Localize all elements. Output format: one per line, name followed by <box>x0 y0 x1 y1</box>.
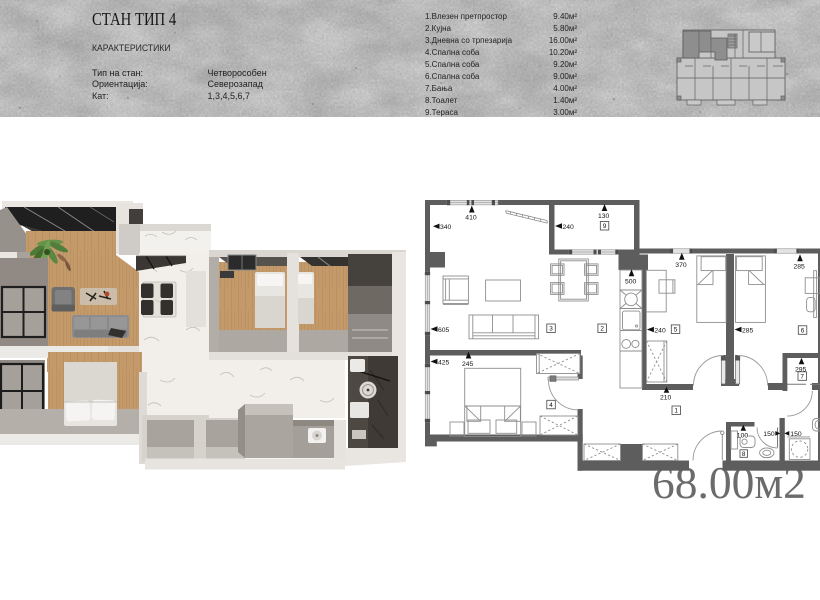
svg-text:210: 210 <box>660 395 672 402</box>
svg-text:1: 1 <box>674 408 678 415</box>
svg-text:7: 7 <box>800 373 804 380</box>
svg-text:245: 245 <box>462 361 474 368</box>
svg-text:150: 150 <box>790 431 802 438</box>
svg-text:2: 2 <box>600 326 604 333</box>
svg-text:9: 9 <box>603 223 607 230</box>
svg-text:240: 240 <box>563 224 575 231</box>
svg-text:130: 130 <box>598 213 610 220</box>
svg-text:150: 150 <box>763 431 775 438</box>
svg-text:605: 605 <box>438 327 450 334</box>
svg-text:5: 5 <box>674 327 678 334</box>
svg-text:100: 100 <box>737 432 749 439</box>
svg-text:370: 370 <box>675 262 687 269</box>
svg-text:4: 4 <box>549 402 553 409</box>
svg-text:285: 285 <box>742 327 754 334</box>
svg-text:240: 240 <box>654 327 666 334</box>
svg-text:500: 500 <box>625 279 637 286</box>
svg-text:425: 425 <box>438 359 450 366</box>
svg-text:410: 410 <box>465 215 477 222</box>
svg-text:6: 6 <box>801 327 805 334</box>
svg-text:8: 8 <box>742 451 746 458</box>
svg-text:3: 3 <box>549 326 553 333</box>
svg-text:285: 285 <box>794 264 806 271</box>
svg-text:340: 340 <box>440 224 452 231</box>
